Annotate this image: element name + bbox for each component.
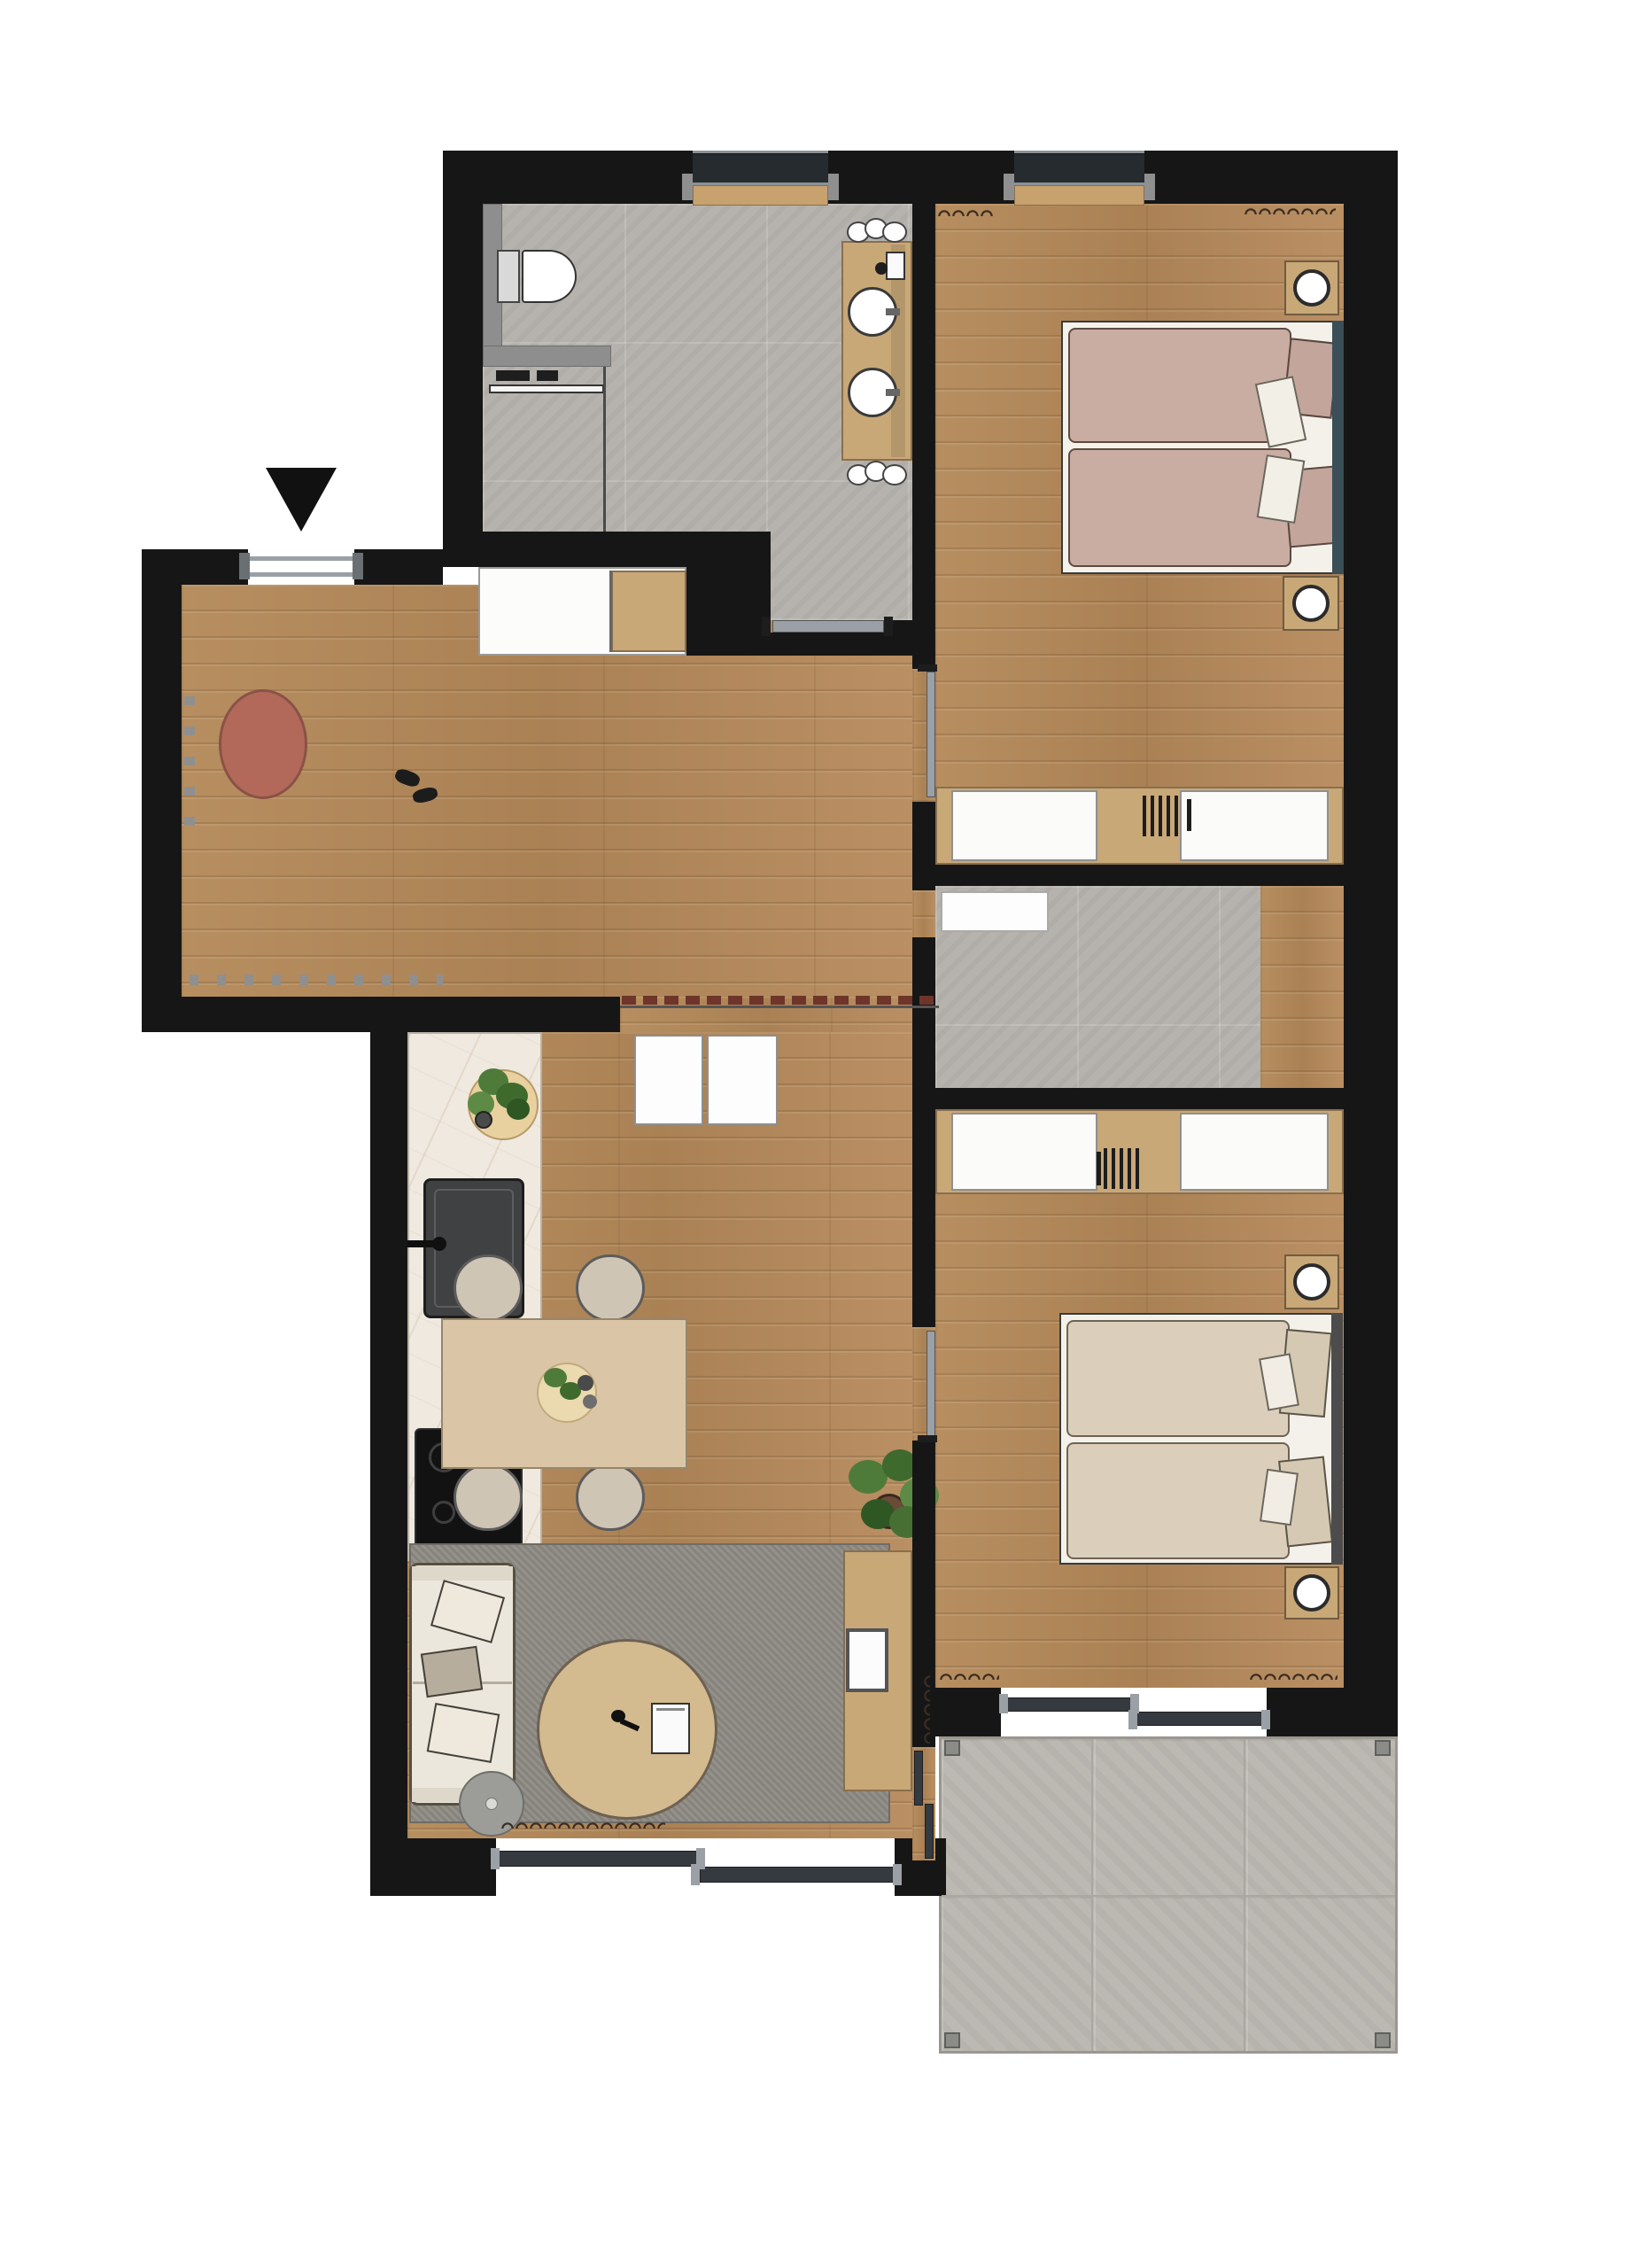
window-sill xyxy=(693,185,828,206)
hall-closet-hinge xyxy=(609,571,612,652)
shower-faucet-icon xyxy=(496,370,530,381)
bed-2-duvet xyxy=(1066,1320,1290,1437)
lamp-icon xyxy=(1292,585,1330,622)
window-jamb xyxy=(1144,174,1155,200)
slider-living-terrace xyxy=(914,1751,923,1806)
towel-icon xyxy=(882,221,907,243)
sofa-armrest xyxy=(412,1566,513,1581)
pouf-button xyxy=(485,1798,498,1810)
wardrobe-2-door xyxy=(1180,1113,1329,1191)
centerpiece-cup xyxy=(583,1394,597,1409)
kitchen-boundary-line xyxy=(620,1006,939,1008)
slider-cap xyxy=(1261,1710,1270,1729)
entrance-arrow-icon xyxy=(266,468,337,532)
hanger-bar xyxy=(1097,1152,1101,1185)
lamp-icon xyxy=(1293,1574,1330,1612)
soap-dot xyxy=(875,262,888,275)
slider-cap xyxy=(1128,1710,1137,1729)
hall-closet-door xyxy=(611,571,686,652)
window-bedroom-1 xyxy=(1014,154,1144,184)
terrace-post xyxy=(944,1740,960,1756)
wall-dots-left xyxy=(184,696,195,842)
terrace-post xyxy=(1375,1740,1391,1756)
shower-wall-top xyxy=(483,346,611,367)
wall-wardrobe-1 xyxy=(935,865,1344,886)
wall-bed2-bottom-right xyxy=(1267,1688,1344,1736)
counter-plant-leaf xyxy=(507,1099,530,1120)
wall-bed2-bottom-left xyxy=(935,1688,1001,1736)
entry-door-cap xyxy=(353,553,363,579)
kitchen-tall-unit-2 xyxy=(707,1035,778,1125)
entry-door-cap xyxy=(239,553,250,579)
hall-round-rug xyxy=(219,689,307,799)
floor-plan xyxy=(0,0,1636,2268)
sofa-pillow xyxy=(421,1646,483,1697)
curtain-icon xyxy=(500,1818,665,1829)
door-leaf-bathroom xyxy=(772,620,884,633)
entry-door-sill xyxy=(250,556,353,561)
bed-2-headboard xyxy=(1331,1313,1343,1565)
door-bracket xyxy=(918,664,937,672)
kitchen-faucet-base xyxy=(432,1237,446,1251)
bed-1-headboard xyxy=(1332,321,1344,574)
entry-door-sill xyxy=(250,572,353,577)
lamp-icon xyxy=(1293,269,1330,307)
hanger-icon xyxy=(1143,796,1178,836)
utility-door-open xyxy=(941,891,1049,932)
wall-bath-bedroom xyxy=(912,204,935,656)
sink-faucet-1 xyxy=(886,308,900,315)
wall-bath-door-sill xyxy=(771,633,886,656)
slider-cap xyxy=(893,1864,902,1885)
opening-utility xyxy=(912,890,935,937)
dining-chair xyxy=(454,1464,523,1531)
door-bracket xyxy=(884,617,893,636)
curtain-icon xyxy=(1249,1669,1337,1680)
door-bracket xyxy=(762,617,771,636)
wall-hall-left xyxy=(142,549,182,1032)
terrace-grid-line xyxy=(942,1895,1395,1897)
shower-glass-panel xyxy=(603,367,606,532)
shower-bar xyxy=(489,384,604,393)
door-leaf-bedroom-1 xyxy=(927,672,935,797)
window-sill xyxy=(1014,185,1144,206)
lamp-icon xyxy=(1293,1263,1330,1301)
soap-tray xyxy=(886,252,905,280)
window-frame xyxy=(693,151,828,153)
wardrobe-1-door xyxy=(1180,790,1329,861)
toilet-bowl-icon xyxy=(522,250,577,303)
sink-faucet-2 xyxy=(886,389,900,396)
coffee-table xyxy=(537,1639,717,1820)
slider-bedroom-2 xyxy=(1136,1712,1265,1726)
dining-chair xyxy=(576,1464,645,1531)
hanger-icon xyxy=(1104,1148,1139,1189)
wall-dots-bottom xyxy=(190,975,443,985)
dining-chair xyxy=(454,1254,523,1322)
slider-living-terrace xyxy=(925,1804,934,1859)
wall-bath-left xyxy=(443,204,483,567)
curtain-icon xyxy=(939,1669,999,1680)
slider-cap xyxy=(999,1694,1008,1713)
window-jamb xyxy=(828,174,839,200)
wall-hall-bottom xyxy=(182,997,620,1032)
wardrobe-1-door xyxy=(951,790,1097,861)
floor-utility-wood xyxy=(1260,886,1344,1088)
wall-right xyxy=(1344,151,1398,1736)
terrace-post xyxy=(1375,2032,1391,2048)
curtain-icon xyxy=(937,206,994,216)
window-bathroom xyxy=(693,154,828,184)
wardrobe-2-door xyxy=(951,1113,1097,1191)
door-bracket xyxy=(918,1435,937,1442)
wall-entry-right xyxy=(354,549,443,585)
counter-jar xyxy=(475,1111,492,1129)
wall-wardrobe-2 xyxy=(935,1088,1344,1109)
door-leaf-bedroom-2 xyxy=(927,1331,935,1437)
centerpiece-cup xyxy=(578,1375,593,1391)
slider-living-south xyxy=(700,1867,896,1883)
slider-cap xyxy=(491,1848,500,1869)
burner-icon xyxy=(432,1501,455,1524)
towel-icon xyxy=(882,464,907,485)
wall-bath-bottom xyxy=(686,532,771,656)
dining-chair xyxy=(576,1254,645,1322)
toilet-tank xyxy=(497,250,520,303)
window-jamb xyxy=(1004,174,1014,200)
wall-living-bottom-left xyxy=(370,1838,496,1896)
slider-cap xyxy=(691,1864,700,1885)
curtain-icon xyxy=(919,1674,930,1744)
window-jamb xyxy=(682,174,693,200)
bed-2-duvet xyxy=(1066,1442,1290,1559)
kitchen-tall-unit-1 xyxy=(634,1035,703,1125)
shower-mixer-icon xyxy=(537,370,558,381)
curtain-icon xyxy=(1244,204,1336,214)
window-frame xyxy=(1014,151,1144,153)
radiator-strip xyxy=(622,996,937,1005)
slider-living-south xyxy=(496,1851,702,1867)
hanger-bar xyxy=(1187,799,1191,831)
coffee-table-book-line xyxy=(656,1708,685,1711)
wall-under-shower xyxy=(443,532,686,567)
slider-bedroom-2 xyxy=(1004,1697,1134,1712)
terrace-post xyxy=(944,2032,960,2048)
wall-living-left xyxy=(370,1032,407,1896)
tv-icon xyxy=(846,1628,888,1692)
